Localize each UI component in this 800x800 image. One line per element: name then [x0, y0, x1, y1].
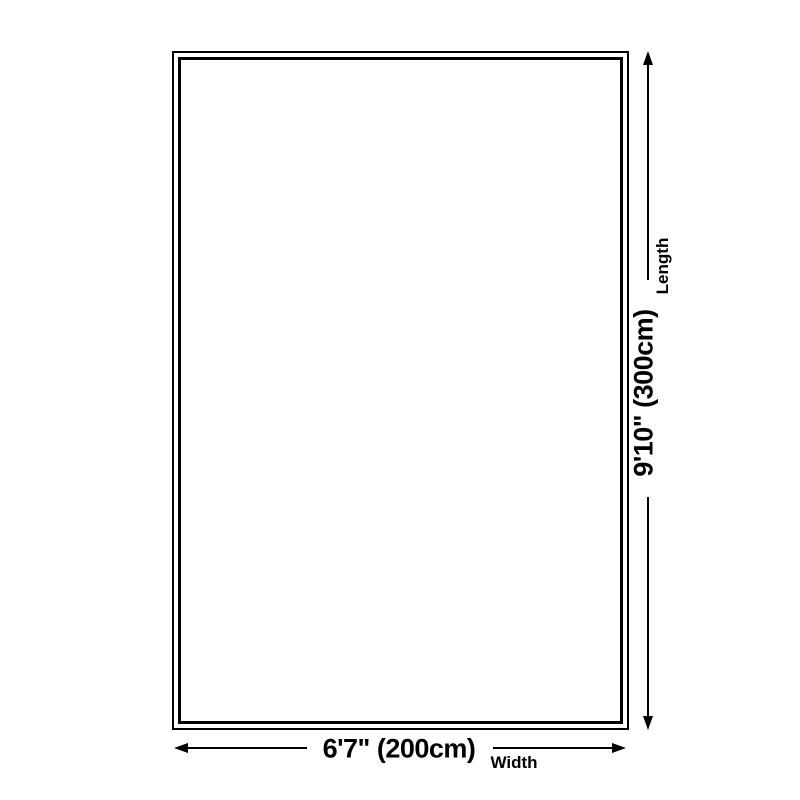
arrowhead-up-icon [643, 51, 653, 65]
product-inner-border [178, 57, 623, 724]
size-diagram: 9'10" (300cm) Length 6'7" (200cm) Width [0, 0, 800, 800]
length-caption: Length [653, 238, 673, 295]
product-outline [172, 51, 629, 730]
width-caption: Width [490, 753, 537, 773]
arrowhead-down-icon [643, 716, 653, 730]
width-value-label: 6'7" (200cm) [323, 734, 476, 765]
arrowhead-right-icon [612, 743, 626, 753]
length-value-label: 9'10" (300cm) [629, 309, 660, 476]
arrowhead-left-icon [174, 743, 188, 753]
